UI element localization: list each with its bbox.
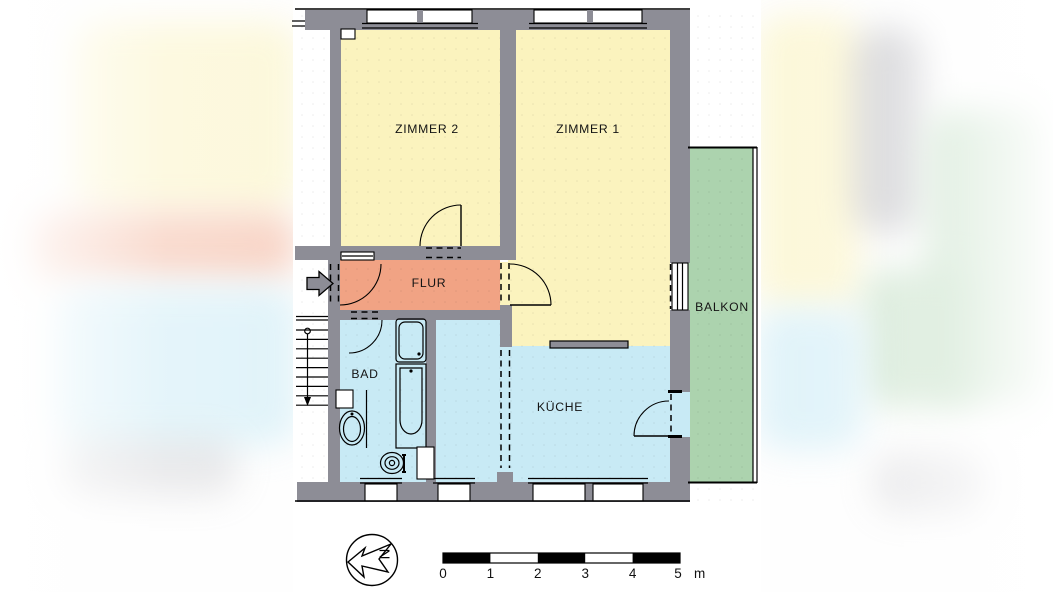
scale-segment-3	[633, 553, 680, 563]
label-bad: BAD	[351, 367, 378, 381]
wall-zimmer2-flur	[295, 246, 516, 260]
wall-stub-kueche	[500, 305, 512, 347]
kueche-door-stop-bottom	[668, 435, 682, 438]
scale-tick-1: 1	[487, 566, 495, 581]
label-zimmer2: ZIMMER 2	[395, 122, 459, 136]
wall-zimmer-divider	[500, 10, 516, 260]
bad-wall-niche	[336, 390, 353, 408]
scale-tick-5: 5	[674, 566, 682, 581]
kueche-door-stop-top	[668, 390, 682, 393]
scale-segment-1	[443, 553, 490, 563]
scale-tick-3: 3	[581, 566, 589, 581]
wall-right-middle	[670, 310, 690, 392]
compass-north-letter: N	[376, 549, 393, 560]
kitchen-counter	[550, 341, 628, 348]
balcony-door-zimmer1	[672, 263, 688, 310]
window-pantry	[438, 484, 470, 501]
label-zimmer1: ZIMMER 1	[556, 122, 620, 136]
window-zimmer1-mullion	[587, 10, 593, 23]
compass-north-icon: N	[347, 535, 398, 586]
floorplan-image: ZIMMER 2 ZIMMER 1 FLUR BAD KÜCHE BALKON …	[0, 0, 1053, 592]
wall-right-upper	[670, 10, 690, 263]
floorplan-page: ZIMMER 2 ZIMMER 1 FLUR BAD KÜCHE BALKON …	[0, 0, 1053, 592]
chimney-niche	[341, 29, 355, 39]
bathtub-faucet	[409, 369, 412, 372]
label-flur: FLUR	[412, 276, 447, 290]
window-kueche-left	[533, 484, 585, 501]
wall-left-upper	[330, 29, 341, 246]
shower-drain	[417, 352, 420, 355]
scale-segment-2	[538, 553, 585, 563]
washbasin-faucet	[351, 413, 354, 416]
window-bad	[365, 484, 397, 501]
scale-tick-4: 4	[629, 566, 637, 581]
wall-left-lower	[328, 260, 340, 482]
pantry-service-door	[417, 447, 434, 479]
label-balkon: BALKON	[695, 300, 749, 314]
window-kueche-right	[593, 484, 643, 501]
scale-tick-2: 2	[534, 566, 542, 581]
scale-tick-0: 0	[439, 566, 447, 581]
label-kueche: KÜCHE	[537, 400, 583, 414]
kueche-balcony-door-opening	[670, 392, 690, 437]
scale-unit: m	[694, 566, 705, 581]
window-zimmer2-mullion	[417, 10, 423, 23]
